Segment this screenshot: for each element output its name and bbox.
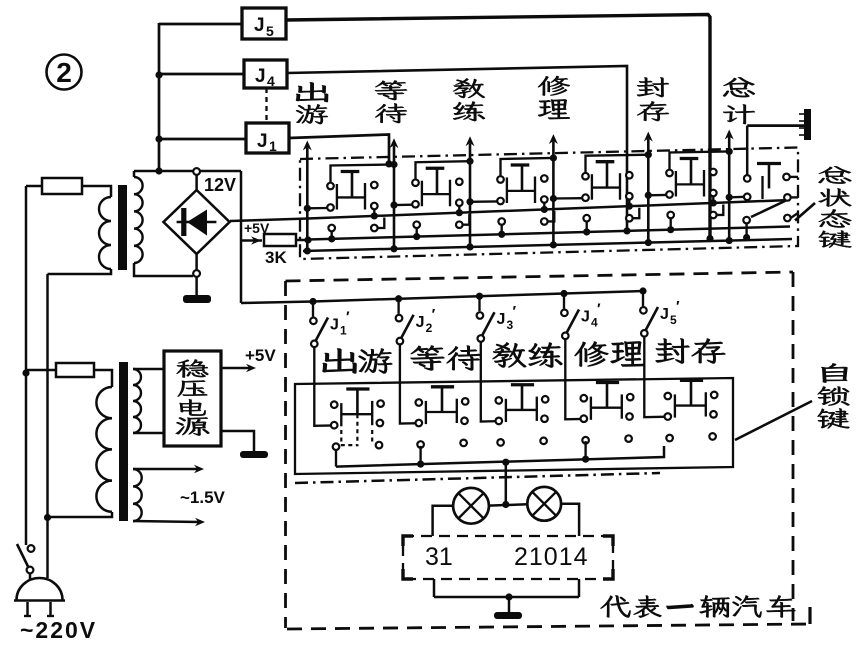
svg-text:5: 5 — [266, 23, 274, 39]
svg-text:5: 5 — [670, 313, 677, 327]
svg-text:4: 4 — [591, 316, 598, 330]
svg-text:3K: 3K — [265, 248, 287, 267]
svg-text:1: 1 — [269, 138, 277, 154]
svg-text:J: J — [254, 15, 265, 36]
svg-text:2: 2 — [426, 321, 433, 335]
svg-text:J: J — [255, 66, 266, 87]
svg-text:3: 3 — [507, 318, 514, 332]
svg-text:J: J — [257, 131, 268, 152]
svg-text:1: 1 — [340, 324, 347, 338]
svg-text:J: J — [581, 309, 590, 326]
svg-text:~220V: ~220V — [20, 617, 97, 643]
svg-text:J: J — [660, 306, 669, 323]
svg-text:′: ′ — [346, 309, 350, 326]
svg-text:31: 31 — [425, 543, 453, 571]
svg-text:21014: 21014 — [514, 543, 589, 571]
svg-text:′: ′ — [513, 303, 517, 320]
svg-text:J: J — [330, 317, 339, 334]
svg-text:12V: 12V — [204, 175, 236, 195]
svg-text:J: J — [497, 311, 506, 328]
svg-text:′: ′ — [676, 298, 680, 315]
svg-text:+5V: +5V — [245, 346, 276, 365]
svg-text:4: 4 — [267, 73, 275, 89]
svg-text:′: ′ — [597, 301, 601, 318]
svg-text:+5V: +5V — [244, 220, 270, 236]
svg-text:~1.5V: ~1.5V — [180, 488, 226, 507]
svg-text:2: 2 — [56, 57, 72, 88]
svg-text:′: ′ — [432, 306, 436, 323]
svg-text:J: J — [416, 314, 425, 331]
